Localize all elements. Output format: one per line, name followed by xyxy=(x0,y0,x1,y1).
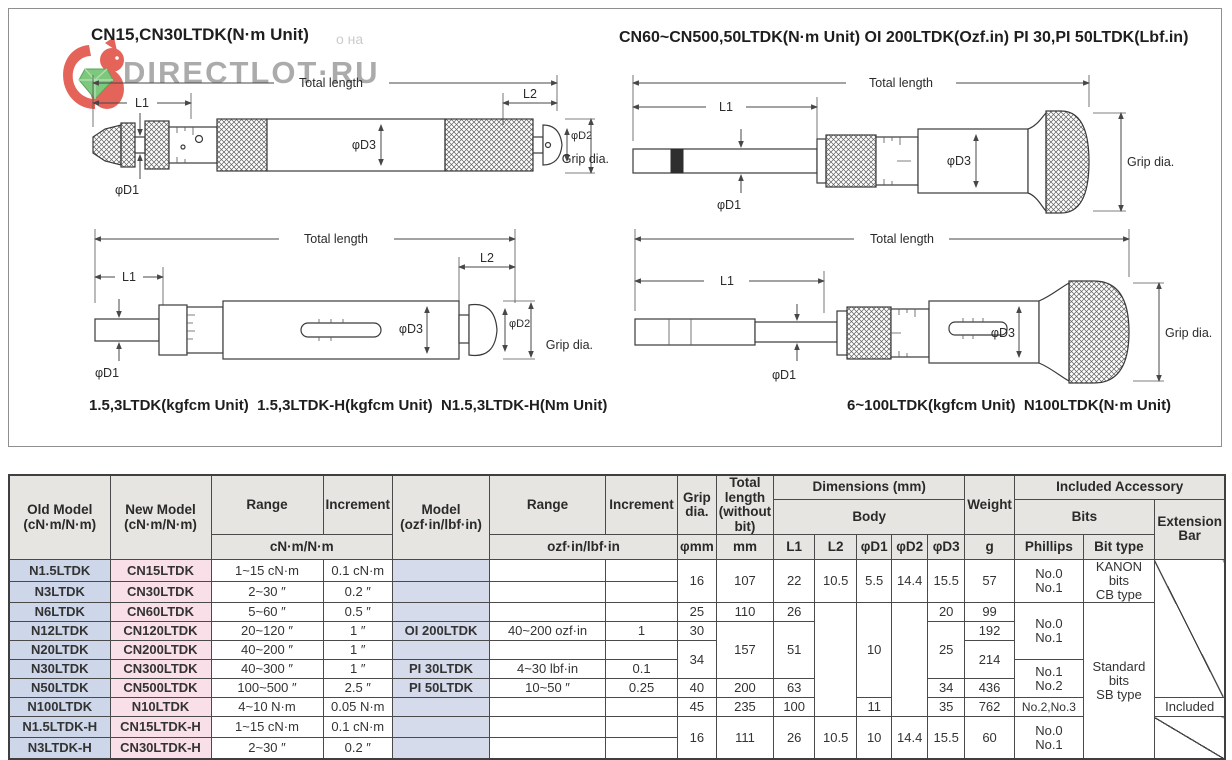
cell-grip-dia: 40 xyxy=(678,679,717,698)
dim-label-d1: φD1 xyxy=(772,368,796,382)
cell-increment-ozf xyxy=(606,581,678,603)
cell-new-model: CN15LTDK xyxy=(110,560,211,582)
cell-d3: 15.5 xyxy=(928,560,965,603)
cell-model: OI 200LTDK xyxy=(393,622,490,641)
cell-old-model: N3LTDK-H xyxy=(9,738,110,759)
cell-d3: 34 xyxy=(928,679,965,698)
cell-old-model: N1.5LTDK xyxy=(9,560,110,582)
cell-range-ozf xyxy=(490,603,606,622)
cell-new-model: CN120LTDK xyxy=(110,622,211,641)
cell-range: 40~300 ″ xyxy=(211,660,323,679)
cell-increment-ozf xyxy=(606,738,678,759)
cell-d1: 5.5 xyxy=(857,560,892,603)
col-header-phillips: Phillips xyxy=(1014,535,1083,560)
cell-grip-dia: 30 xyxy=(678,622,717,641)
cell-new-model: CN30LTDK xyxy=(110,581,211,603)
cell-range: 2~30 ″ xyxy=(211,581,323,603)
dim-label-grip-dia: Grip dia. xyxy=(1127,155,1174,169)
cell-l1: 100 xyxy=(774,698,815,717)
cell-total-length: 235 xyxy=(716,698,773,717)
col-header-d1: φD1 xyxy=(857,535,892,560)
cell-increment: 1 ″ xyxy=(323,641,393,660)
cell-grip-dia: 25 xyxy=(678,603,717,622)
dim-label-d3: φD3 xyxy=(947,154,971,168)
col-header-old-model: Old Model (cN·m/N·m) xyxy=(9,475,110,560)
figure-caption-left: 1.5,3LTDK(kgfcm Unit) 1.5,3LTDK-H(kgfcm … xyxy=(89,397,607,414)
diagram-cn60-500ltdk: Total length L1 φD1 φD3 Grip dia. xyxy=(621,67,1206,217)
cell-weight: 99 xyxy=(965,603,1015,622)
dim-label-l2: L2 xyxy=(480,251,494,265)
cell-range-ozf xyxy=(490,717,606,738)
col-header-body: Body xyxy=(774,499,965,535)
dim-label-d3: φD3 xyxy=(991,326,1015,340)
cell-grip-dia: 34 xyxy=(678,641,717,679)
cell-phillips: No.1 No.2 xyxy=(1014,660,1083,698)
cell-phillips: No.0 No.1 xyxy=(1014,717,1083,759)
cell-increment: 0.1 cN·m xyxy=(323,560,393,582)
cell-d2 xyxy=(892,603,928,717)
cell-total-length: 111 xyxy=(716,717,773,759)
cell-range: 20~120 ″ xyxy=(211,622,323,641)
unit-header-weight: g xyxy=(965,535,1015,560)
col-header-included-accessory: Included Accessory xyxy=(1014,475,1225,499)
spec-table: Old Model (cN·m/N·m) New Model (cN·m/N·m… xyxy=(8,474,1226,760)
cell-weight: 192 xyxy=(965,622,1015,641)
dim-label-d2: φD2 xyxy=(509,318,530,330)
catalog-figure-panel: DIRECTLOT·RU о на CN15,CN30LTDK(N·m Unit… xyxy=(8,8,1222,447)
cell-extension-bar: Included xyxy=(1154,698,1225,717)
col-header-d3: φD3 xyxy=(928,535,965,560)
table-row: N1.5LTDK CN15LTDK 1~15 cN·m 0.1 cN·m 16 … xyxy=(9,560,1225,582)
dim-label-total-length: Total length xyxy=(869,76,933,90)
cell-range: 100~500 ″ xyxy=(211,679,323,698)
cell-d2: 14.4 xyxy=(892,560,928,603)
cell-l1: 26 xyxy=(774,603,815,622)
cell-l1: 63 xyxy=(774,679,815,698)
table-row: N30LTDK CN300LTDK 40~300 ″ 1 ″ PI 30LTDK… xyxy=(9,660,1225,679)
cell-old-model: N6LTDK xyxy=(9,603,110,622)
figure-title-left: CN15,CN30LTDK(N·m Unit) xyxy=(91,25,309,45)
cell-grip-dia: 16 xyxy=(678,717,717,759)
dim-label-l2: L2 xyxy=(523,87,537,101)
watermark-fragment: о на xyxy=(336,31,363,47)
cell-old-model: N50LTDK xyxy=(9,679,110,698)
col-header-range-ozf: Range xyxy=(490,475,606,535)
cell-increment: 2.5 ″ xyxy=(323,679,393,698)
col-header-l1: L1 xyxy=(774,535,815,560)
cell-l1: 51 xyxy=(774,622,815,679)
cell-range-ozf xyxy=(490,698,606,717)
dim-label-l1: L1 xyxy=(122,270,136,284)
col-header-dimensions: Dimensions (mm) xyxy=(774,475,965,499)
cell-d1: 10 xyxy=(857,717,892,759)
cell-weight: 214 xyxy=(965,641,1015,679)
col-header-model-ozf: Model (ozf·in/lbf·in) xyxy=(393,475,490,560)
unit-header-ozf: ozf·in/lbf·in xyxy=(490,535,678,560)
dim-label-total-length: Total length xyxy=(299,76,363,90)
cell-l2 xyxy=(815,603,857,717)
col-header-grip-dia: Grip dia. xyxy=(678,475,717,535)
cell-d1: 10 xyxy=(857,603,892,698)
dim-label-l1: L1 xyxy=(719,100,733,114)
cell-l2: 10.5 xyxy=(815,717,857,759)
cell-model: PI 30LTDK xyxy=(393,660,490,679)
cell-old-model: N1.5LTDK-H xyxy=(9,717,110,738)
cell-old-model: N20LTDK xyxy=(9,641,110,660)
cell-model xyxy=(393,717,490,738)
cell-total-length: 107 xyxy=(716,560,773,603)
cell-increment-ozf xyxy=(606,603,678,622)
cell-old-model: N3LTDK xyxy=(9,581,110,603)
cell-new-model: N10LTDK xyxy=(110,698,211,717)
cell-d3: 15.5 xyxy=(928,717,965,759)
cell-range: 40~200 ″ xyxy=(211,641,323,660)
cell-total-length: 200 xyxy=(716,679,773,698)
cell-new-model: CN30LTDK-H xyxy=(110,738,211,759)
cell-range: 5~60 ″ xyxy=(211,603,323,622)
cell-old-model: N30LTDK xyxy=(9,660,110,679)
cell-range: 1~15 cN·m xyxy=(211,717,323,738)
figure-caption-right: 6~100LTDK(kgfcm Unit) N100LTDK(N·m Unit) xyxy=(847,397,1171,414)
cell-range-ozf: 10~50 ″ xyxy=(490,679,606,698)
cell-total-length: 110 xyxy=(716,603,773,622)
cell-phillips: No.0 No.1 xyxy=(1014,560,1083,603)
dim-label-grip-dia: Grip dia. xyxy=(1165,326,1212,340)
dim-label-l1: L1 xyxy=(135,96,149,110)
cell-increment-ozf: 1 xyxy=(606,622,678,641)
cell-bit-type: KANON bits CB type xyxy=(1083,560,1154,603)
dim-label-grip-dia: Grip dia. xyxy=(546,338,593,352)
dim-label-d3: φD3 xyxy=(399,322,423,336)
dim-label-l1: L1 xyxy=(720,274,734,288)
cell-model xyxy=(393,738,490,759)
cell-model xyxy=(393,603,490,622)
cell-range-ozf: 40~200 ozf·in xyxy=(490,622,606,641)
cell-new-model: CN300LTDK xyxy=(110,660,211,679)
unit-header-grip: φmm xyxy=(678,535,717,560)
cell-increment: 0.5 ″ xyxy=(323,603,393,622)
cell-range: 4~10 N·m xyxy=(211,698,323,717)
table-row: N6LTDK CN60LTDK 5~60 ″ 0.5 ″ 25 110 26 1… xyxy=(9,603,1225,622)
cell-weight: 436 xyxy=(965,679,1015,698)
cell-old-model: N100LTDK xyxy=(9,698,110,717)
cell-bit-type: Standard bits SB type xyxy=(1083,603,1154,759)
cell-l1: 22 xyxy=(774,560,815,603)
cell-phillips: No.0 No.1 xyxy=(1014,603,1083,660)
dim-label-d1: φD1 xyxy=(95,366,119,380)
col-header-total-length: Total length (without bit) xyxy=(716,475,773,535)
cell-model xyxy=(393,641,490,660)
cell-increment: 0.1 cN·m xyxy=(323,717,393,738)
cell-d2: 14.4 xyxy=(892,717,928,759)
cell-increment: 1 ″ xyxy=(323,622,393,641)
cell-range-ozf xyxy=(490,560,606,582)
cell-l2: 10.5 xyxy=(815,560,857,603)
col-header-range-cnm: Range xyxy=(211,475,323,535)
cell-range: 2~30 ″ xyxy=(211,738,323,759)
diagram-cn15-30ltdk: Total length L1 L2 φD3 φD2 Grip dia. φD1 xyxy=(79,67,609,215)
cell-d3: 20 xyxy=(928,603,965,622)
cell-l1: 26 xyxy=(774,717,815,759)
cell-grip-dia: 16 xyxy=(678,560,717,603)
table-row: N100LTDK N10LTDK 4~10 N·m 0.05 N·m 45 23… xyxy=(9,698,1225,717)
col-header-bits: Bits xyxy=(1014,499,1154,535)
cell-increment: 1 ″ xyxy=(323,660,393,679)
diagram-1-5-3ltdk: Total length L1 L2 φD1 φD3 φD2 Grip dia. xyxy=(79,219,594,381)
cell-phillips: No.2,No.3 xyxy=(1014,698,1083,717)
cell-range-ozf xyxy=(490,641,606,660)
cell-new-model: CN60LTDK xyxy=(110,603,211,622)
cell-model xyxy=(393,581,490,603)
unit-header-cnm: cN·m/N·m xyxy=(211,535,393,560)
col-header-new-model: New Model (cN·m/N·m) xyxy=(110,475,211,560)
dim-label-d2: φD2 xyxy=(571,130,592,142)
col-header-increment-ozf: Increment xyxy=(606,475,678,535)
cell-new-model: CN500LTDK xyxy=(110,679,211,698)
cell-d1: 11 xyxy=(857,698,892,717)
cell-increment-ozf xyxy=(606,641,678,660)
dim-label-d1: φD1 xyxy=(115,183,139,197)
dim-label-d3: φD3 xyxy=(352,138,376,152)
cell-total-length: 157 xyxy=(716,622,773,679)
cell-d3: 35 xyxy=(928,698,965,717)
cell-increment: 0.2 ″ xyxy=(323,738,393,759)
cell-weight: 762 xyxy=(965,698,1015,717)
dim-label-total-length: Total length xyxy=(304,232,368,246)
cell-model xyxy=(393,560,490,582)
dim-label-d1: φD1 xyxy=(717,198,741,212)
col-header-l2: L2 xyxy=(815,535,857,560)
col-header-weight: Weight xyxy=(965,475,1015,535)
cell-increment: 0.05 N·m xyxy=(323,698,393,717)
cell-d3: 25 xyxy=(928,622,965,679)
cell-increment-ozf: 0.1 xyxy=(606,660,678,679)
cell-new-model: CN15LTDK-H xyxy=(110,717,211,738)
cell-range-ozf xyxy=(490,581,606,603)
figure-title-right: CN60~CN500,50LTDK(N·m Unit) OI 200LTDK(O… xyxy=(619,29,1188,47)
dim-label-grip-dia: Grip dia. xyxy=(562,152,609,166)
cell-increment-ozf xyxy=(606,698,678,717)
cell-old-model: N12LTDK xyxy=(9,622,110,641)
cell-model: PI 50LTDK xyxy=(393,679,490,698)
cell-increment-ozf: 0.25 xyxy=(606,679,678,698)
unit-header-total: mm xyxy=(716,535,773,560)
cell-increment-ozf xyxy=(606,717,678,738)
cell-extension-bar xyxy=(1154,560,1225,698)
col-header-bit-type: Bit type xyxy=(1083,535,1154,560)
col-header-increment-cnm: Increment xyxy=(323,475,393,535)
cell-extension-bar xyxy=(1154,717,1225,759)
cell-weight: 57 xyxy=(965,560,1015,603)
col-header-d2: φD2 xyxy=(892,535,928,560)
cell-range-ozf: 4~30 lbf·in xyxy=(490,660,606,679)
dim-label-total-length: Total length xyxy=(870,232,934,246)
cell-increment-ozf xyxy=(606,560,678,582)
col-header-extension-bar: Extension Bar xyxy=(1154,499,1225,560)
diagram-6-100ltdk: Total length L1 φD1 φD3 Grip dia. xyxy=(619,219,1219,389)
cell-weight: 60 xyxy=(965,717,1015,759)
cell-range-ozf xyxy=(490,738,606,759)
cell-grip-dia: 45 xyxy=(678,698,717,717)
cell-increment: 0.2 ″ xyxy=(323,581,393,603)
cell-new-model: CN200LTDK xyxy=(110,641,211,660)
cell-range: 1~15 cN·m xyxy=(211,560,323,582)
table-row: N1.5LTDK-H CN15LTDK-H 1~15 cN·m 0.1 cN·m… xyxy=(9,717,1225,738)
cell-model xyxy=(393,698,490,717)
